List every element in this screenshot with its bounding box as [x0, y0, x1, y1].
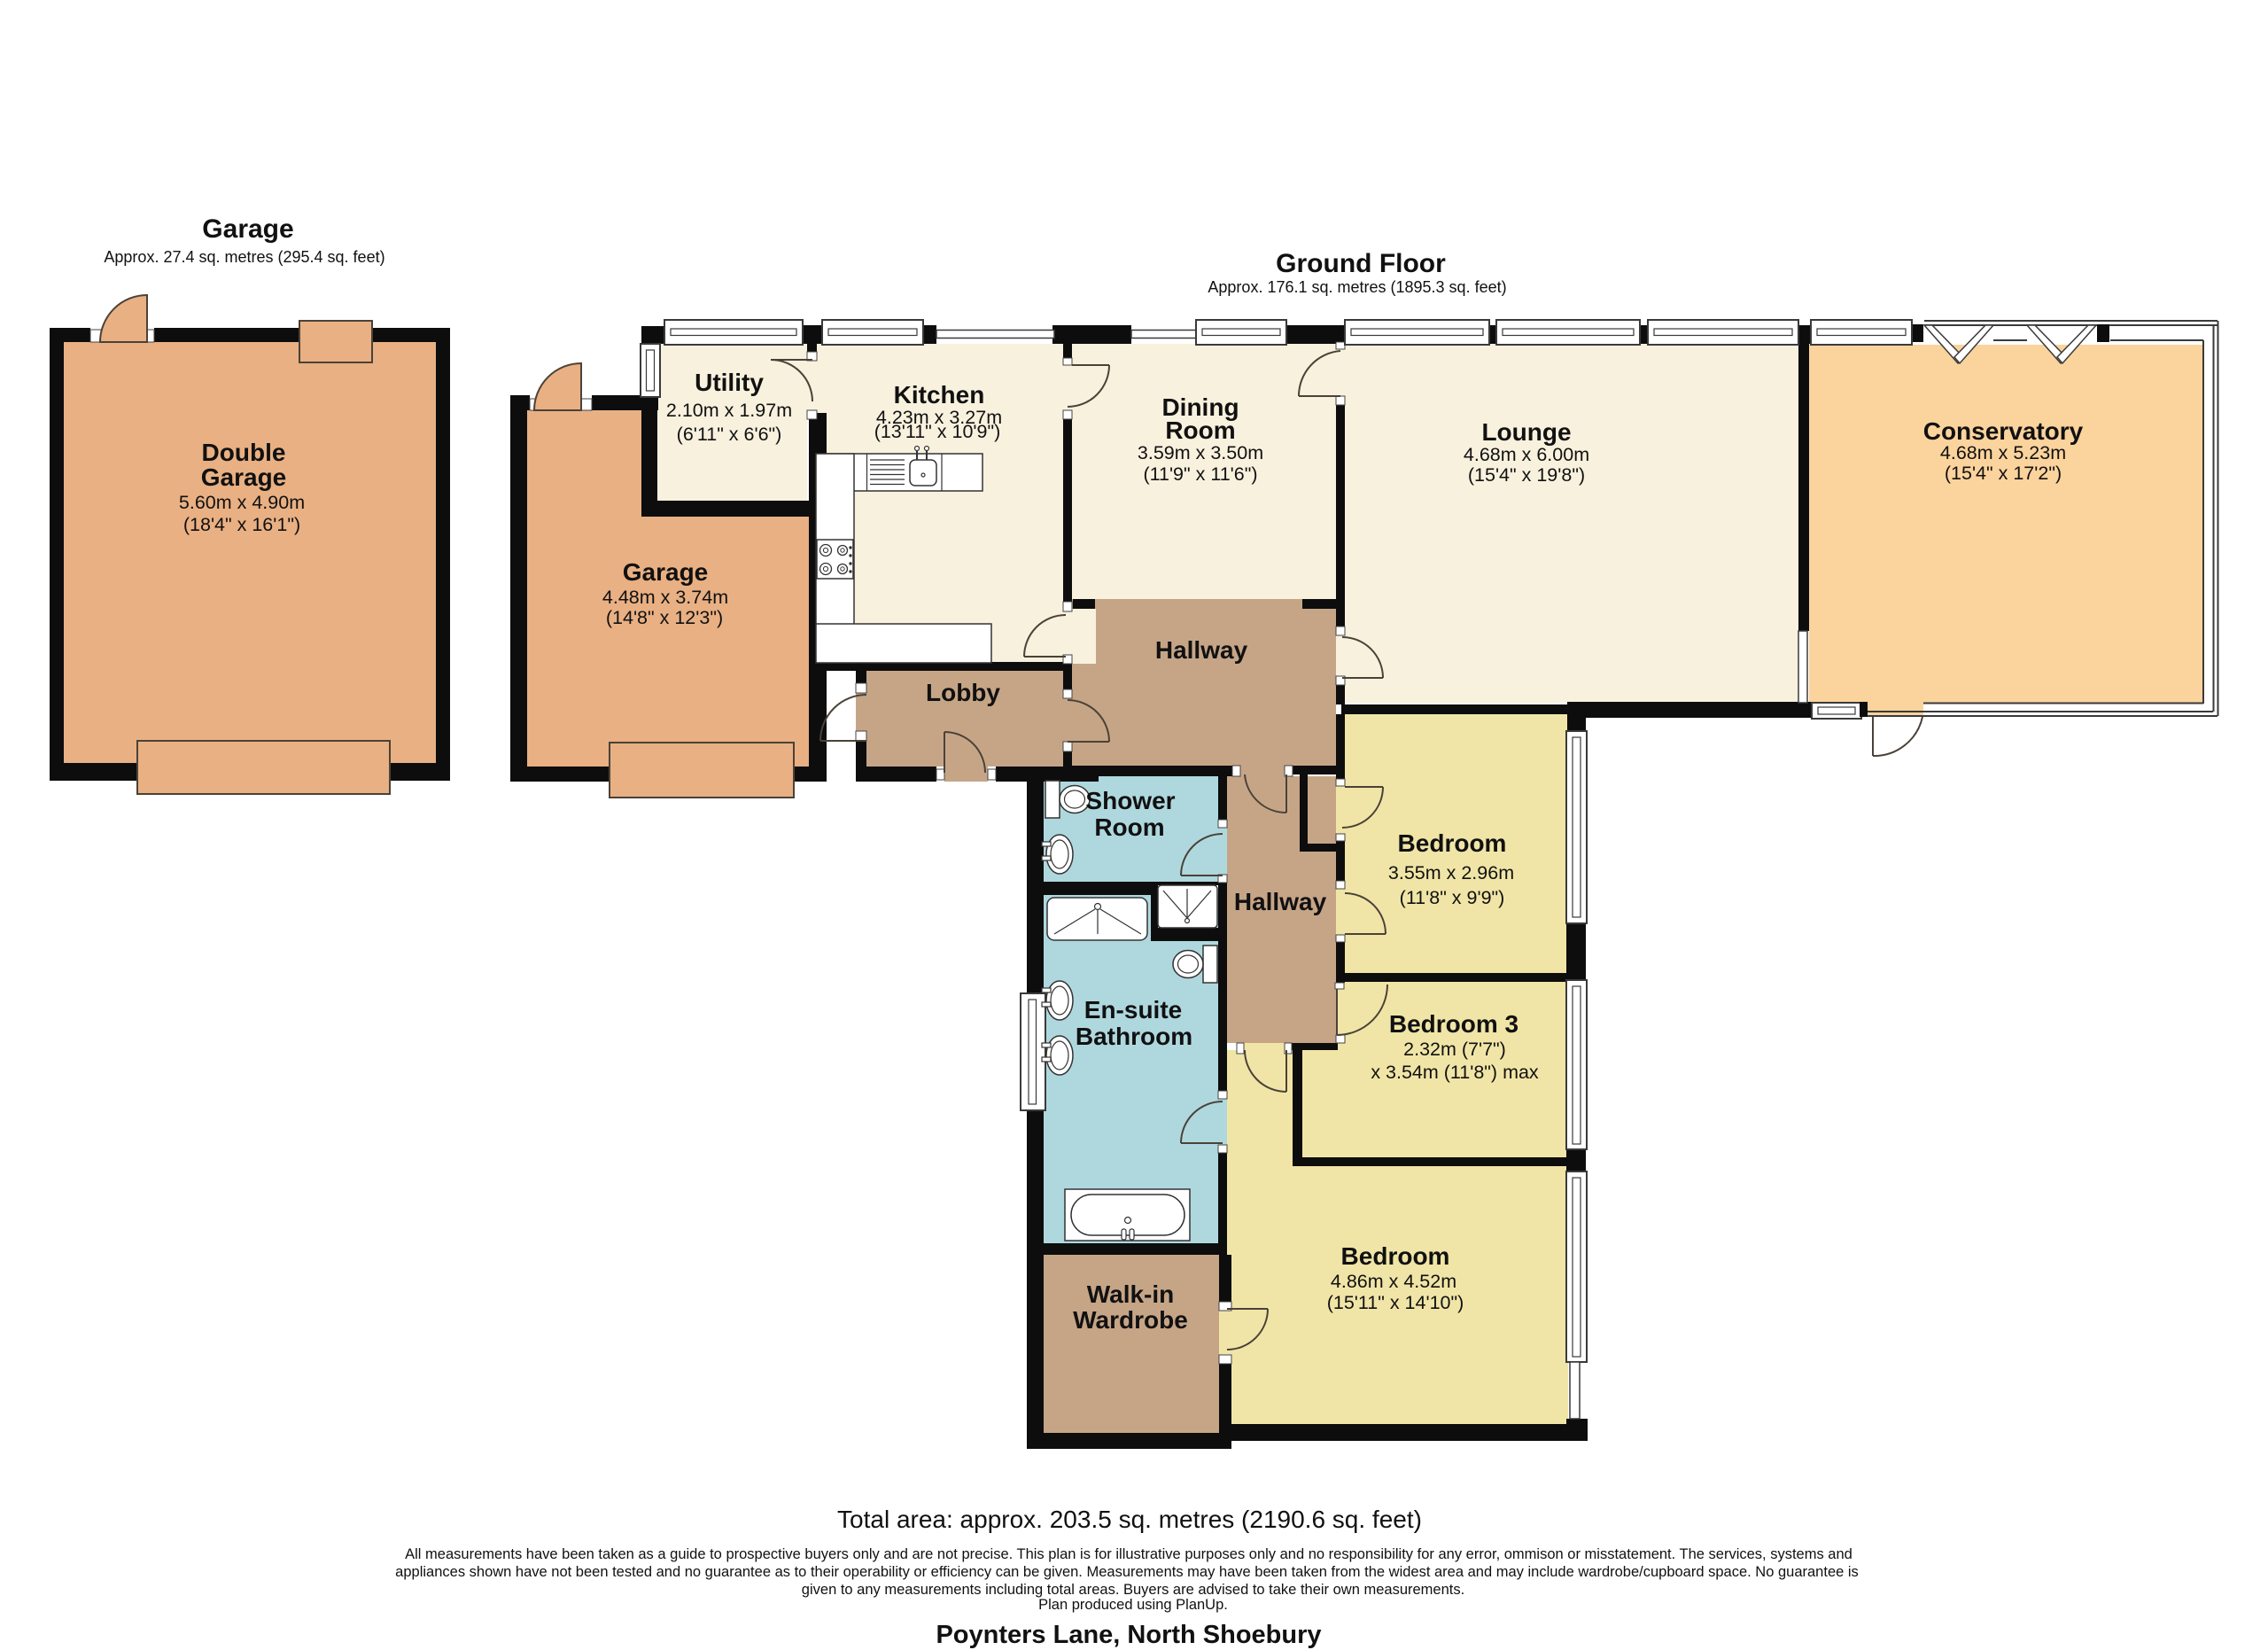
svg-text:Lobby: Lobby: [926, 679, 1000, 706]
svg-text:(15'4" x 19'8"): (15'4" x 19'8"): [1468, 464, 1585, 486]
svg-text:(15'4" x 17'2"): (15'4" x 17'2"): [1945, 463, 2062, 484]
svg-text:Walk-in: Walk-in: [1087, 1280, 1175, 1308]
svg-text:(11'9" x 11'6"): (11'9" x 11'6"): [1143, 463, 1257, 485]
svg-text:5.60m x 4.90m: 5.60m x 4.90m: [179, 492, 305, 513]
svg-text:Shower: Shower: [1085, 787, 1175, 814]
svg-text:Plan produced using PlanUp.: Plan produced using PlanUp.: [1038, 1597, 1228, 1613]
svg-text:4.68m x 6.00m: 4.68m x 6.00m: [1464, 444, 1589, 465]
svg-text:3.59m x 3.50m: 3.59m x 3.50m: [1138, 442, 1263, 463]
svg-text:Approx. 176.1 sq. metres (1895: Approx. 176.1 sq. metres (1895.3 sq. fee…: [1208, 278, 1506, 296]
svg-text:(18'4" x 16'1"): (18'4" x 16'1"): [183, 514, 300, 535]
svg-text:4.86m x 4.52m: 4.86m x 4.52m: [1331, 1271, 1456, 1292]
svg-text:Kitchen: Kitchen: [894, 381, 985, 409]
svg-text:(15'11" x 14'10"): (15'11" x 14'10"): [1327, 1292, 1464, 1313]
svg-text:Ground Floor: Ground Floor: [1276, 249, 1446, 278]
svg-text:Bathroom: Bathroom: [1076, 1023, 1192, 1050]
svg-text:Garage: Garage: [623, 558, 709, 586]
svg-text:Room: Room: [1165, 416, 1235, 444]
svg-text:All measurements have been tak: All measurements have been taken as a gu…: [405, 1546, 1852, 1562]
svg-text:(13'11" x 10'9"): (13'11" x 10'9"): [874, 421, 1001, 442]
svg-text:Double: Double: [202, 439, 286, 466]
svg-text:4.48m x 3.74m: 4.48m x 3.74m: [602, 587, 728, 608]
svg-text:Conservatory: Conservatory: [1923, 417, 2084, 445]
svg-text:appliances shown have not been: appliances shown have not been tested an…: [395, 1564, 1859, 1580]
svg-text:Room: Room: [1094, 813, 1164, 841]
svg-text:(14'8" x 12'3"): (14'8" x 12'3"): [606, 607, 723, 628]
svg-text:Lounge: Lounge: [1481, 418, 1571, 446]
svg-text:(6'11" x 6'6"): (6'11" x 6'6"): [677, 424, 782, 445]
svg-text:Poynters Lane, North Shoebury: Poynters Lane, North Shoebury: [936, 1621, 1321, 1649]
svg-text:Approx. 27.4 sq. metres (295.4: Approx. 27.4 sq. metres (295.4 sq. feet): [104, 248, 384, 266]
svg-text:Hallway: Hallway: [1155, 636, 1248, 664]
svg-text:2.10m x 1.97m: 2.10m x 1.97m: [666, 400, 792, 421]
svg-text:given to any measurements incl: given to any measurements including tota…: [802, 1582, 1464, 1598]
svg-text:Garage: Garage: [201, 463, 287, 491]
svg-text:3.55m x 2.96m: 3.55m x 2.96m: [1388, 862, 1514, 883]
svg-text:En-suite: En-suite: [1084, 996, 1182, 1023]
svg-text:2.32m (7'7"): 2.32m (7'7"): [1403, 1039, 1506, 1060]
svg-text:Hallway: Hallway: [1234, 888, 1327, 915]
svg-text:Utility: Utility: [695, 369, 764, 396]
svg-text:(11'8" x 9'9"): (11'8" x 9'9"): [1400, 887, 1505, 908]
svg-text:Wardrobe: Wardrobe: [1073, 1306, 1188, 1334]
svg-text:Garage: Garage: [202, 214, 293, 244]
svg-text:Bedroom: Bedroom: [1341, 1242, 1450, 1270]
svg-text:4.68m x 5.23m: 4.68m x 5.23m: [1940, 442, 2066, 463]
svg-text:x 3.54m (11'8") max: x 3.54m (11'8") max: [1371, 1062, 1539, 1083]
svg-text:Bedroom: Bedroom: [1398, 829, 1507, 857]
svg-text:Bedroom 3: Bedroom 3: [1389, 1010, 1518, 1038]
svg-text:Total area: approx. 203.5 sq.: Total area: approx. 203.5 sq. metres (21…: [837, 1506, 1422, 1533]
